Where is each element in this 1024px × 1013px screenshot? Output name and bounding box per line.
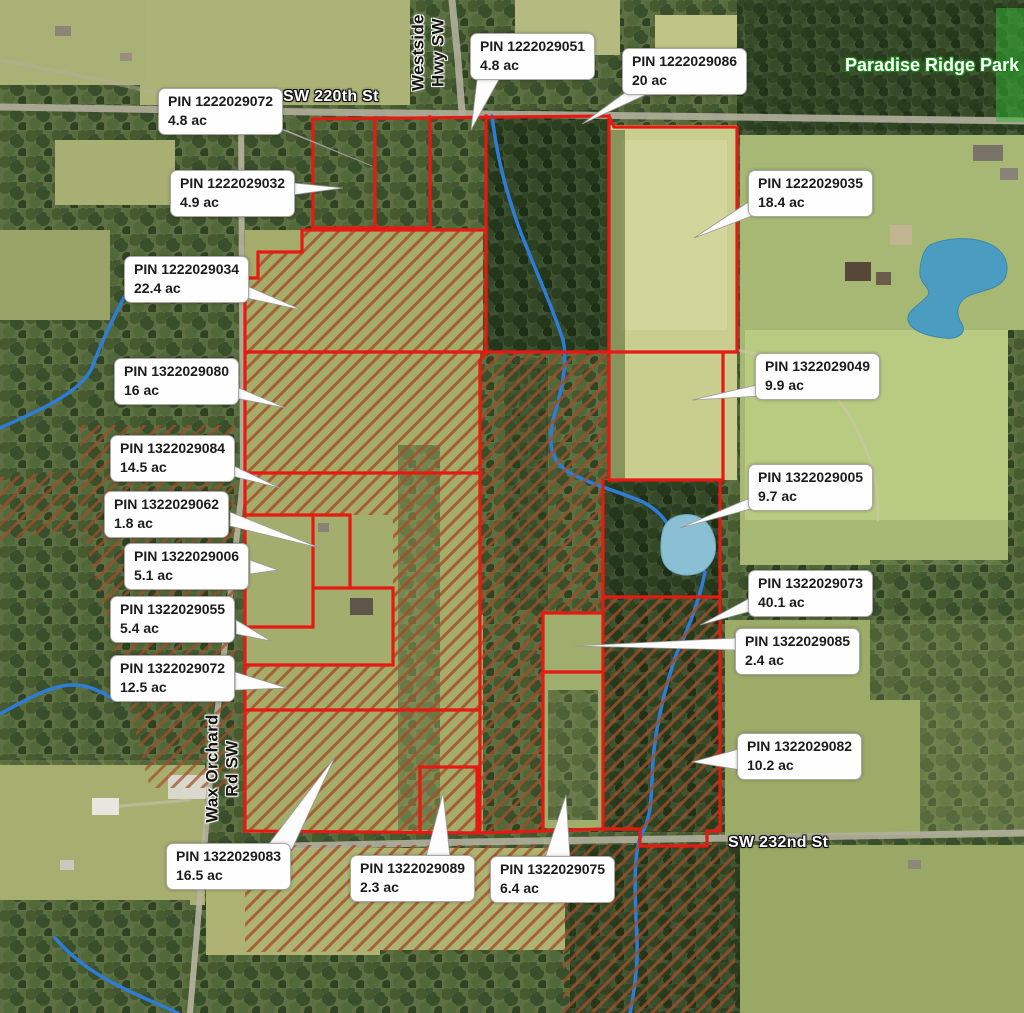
- parcel-area: 5.1 ac: [134, 566, 239, 585]
- parcel-pin: PIN 1322029006: [134, 547, 239, 566]
- parcel-area: 4.9 ac: [180, 193, 285, 212]
- parcel-pin: PIN 1322029073: [758, 574, 863, 593]
- parcel-label: PIN 132202907340.1 ac: [748, 570, 873, 617]
- parcel-label: PIN 13220290555.4 ac: [110, 596, 235, 643]
- parcel-pin: PIN 1222029035: [758, 174, 863, 193]
- parcel-area: 20 ac: [632, 71, 737, 90]
- parcel-pin: PIN 1322029082: [747, 737, 852, 756]
- parcel-label: PIN 132202908210.2 ac: [737, 733, 862, 780]
- parcel-area: 5.4 ac: [120, 619, 225, 638]
- parcel-label: PIN 122202903422.4 ac: [124, 256, 249, 303]
- parcel-label: PIN 13220290059.7 ac: [748, 464, 873, 511]
- parcel-area: 10.2 ac: [747, 756, 852, 775]
- street-label-sw-232nd: SW 232nd St: [728, 834, 828, 852]
- parcel-pin: PIN 1322029005: [758, 468, 863, 487]
- pond-small: [661, 514, 716, 575]
- parcel-label: PIN 13220290065.1 ac: [124, 543, 249, 590]
- parcel-label: PIN 132202908414.5 ac: [110, 435, 235, 482]
- parcel-pin: PIN 1222029032: [180, 174, 285, 193]
- parcel-pin: PIN 1322029062: [114, 495, 219, 514]
- parcel-area: 6.4 ac: [500, 879, 605, 898]
- parcel-area: 18.4 ac: [758, 193, 863, 212]
- parcel-label: PIN 132202907212.5 ac: [110, 655, 235, 702]
- parcel-pin: PIN 1222029051: [480, 37, 585, 56]
- parcel-pin: PIN 1322029049: [765, 357, 870, 376]
- parcel-label: PIN 12220290514.8 ac: [470, 33, 595, 80]
- parcel-pin: PIN 1322029089: [360, 859, 465, 878]
- parcel-label: PIN 12220290324.9 ac: [170, 170, 295, 217]
- parcel-area: 2.4 ac: [745, 651, 850, 670]
- parcel-area: 22.4 ac: [134, 279, 239, 298]
- parcel-pin: PIN 1322029055: [120, 600, 225, 619]
- parcel-area: 9.9 ac: [765, 376, 870, 395]
- parcel-label: PIN 13220290499.9 ac: [755, 353, 880, 400]
- parcel-pin: PIN 1222029072: [168, 92, 273, 111]
- parcel-area: 9.7 ac: [758, 487, 863, 506]
- parcel-label: PIN 13220290892.3 ac: [350, 855, 475, 902]
- street-label-westside-hwy: Westside Hwy SW: [408, 0, 447, 113]
- parcel-label: PIN 13220290756.4 ac: [490, 856, 615, 903]
- street-label-sw-220th: SW 220th St: [283, 88, 379, 106]
- parcel-label: PIN 132202908316.5 ac: [166, 843, 291, 890]
- parcel-area: 4.8 ac: [168, 111, 273, 130]
- parcel-pin: PIN 1222029034: [134, 260, 239, 279]
- parcel-label: PIN 13220290852.4 ac: [735, 628, 860, 675]
- parcel-pin: PIN 1322029084: [120, 439, 225, 458]
- parcel-pin: PIN 1322029083: [176, 847, 281, 866]
- park-label: Paradise Ridge Park: [845, 55, 1019, 76]
- parcel-label: PIN 132202908016 ac: [114, 358, 239, 405]
- parcel-pin: PIN 1322029072: [120, 659, 225, 678]
- parcel-label: PIN 122202908620 ac: [622, 48, 747, 95]
- parcel-area: 2.3 ac: [360, 878, 465, 897]
- parcel-label: PIN 122202903518.4 ac: [748, 170, 873, 217]
- parcel-area: 1.8 ac: [114, 514, 219, 533]
- parcel-area: 16.5 ac: [176, 866, 281, 885]
- street-label-wax-orchard: Wax Orchard Rd SW: [202, 714, 241, 824]
- map-canvas: SW 220th St SW 232nd St Westside Hwy SW …: [0, 0, 1024, 1013]
- parcel-area: 14.5 ac: [120, 458, 225, 477]
- parcel-label: PIN 12220290724.8 ac: [158, 88, 283, 135]
- parcel-label: PIN 13220290621.8 ac: [104, 491, 229, 538]
- parcel-area: 16 ac: [124, 381, 229, 400]
- parcel-pin: PIN 1322029080: [124, 362, 229, 381]
- parcel-area: 4.8 ac: [480, 56, 585, 75]
- parcel-pin: PIN 1322029075: [500, 860, 605, 879]
- parcel-area: 40.1 ac: [758, 593, 863, 612]
- parcel-pin: PIN 1222029086: [632, 52, 737, 71]
- parcel-pin: PIN 1322029085: [745, 632, 850, 651]
- parcel-area: 12.5 ac: [120, 678, 225, 697]
